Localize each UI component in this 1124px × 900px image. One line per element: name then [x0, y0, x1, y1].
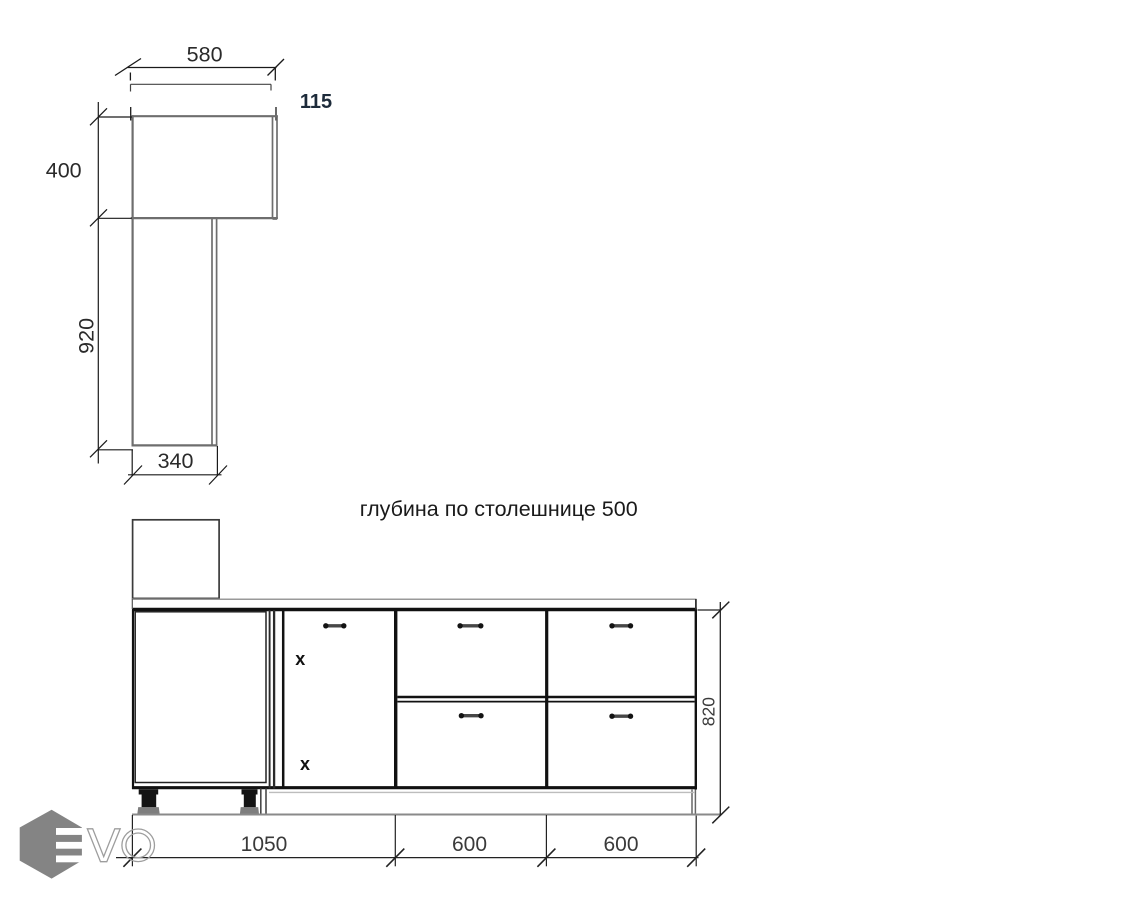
svg-text:920: 920 — [74, 318, 98, 354]
svg-text:400: 400 — [46, 159, 82, 183]
svg-text:600: 600 — [603, 833, 638, 856]
svg-text:1050: 1050 — [241, 833, 288, 856]
svg-text:x: x — [300, 754, 310, 774]
svg-text:x: x — [295, 649, 305, 669]
svg-text:340: 340 — [158, 449, 194, 473]
svg-text:600: 600 — [452, 833, 487, 856]
svg-text:580: 580 — [187, 43, 223, 67]
svg-text:115: 115 — [300, 91, 332, 113]
svg-text:820: 820 — [699, 697, 719, 726]
svg-text:глубина по столешнице 500: глубина по столешнице 500 — [360, 497, 638, 521]
